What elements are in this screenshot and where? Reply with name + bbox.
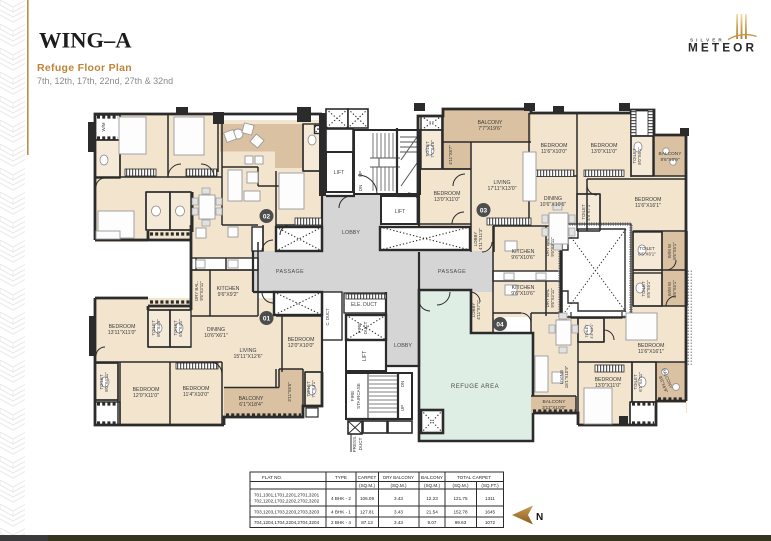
svg-text:12'0"X10'0": 12'0"X10'0" [288,343,315,349]
svg-text:METEOR: METEOR [688,41,757,55]
svg-text:LIFT: LIFT [334,170,345,176]
svg-text:LIFT: LIFT [395,209,406,215]
svg-text:6'1"X4'11": 6'1"X4'11" [638,372,643,392]
svg-text:UP: UP [400,405,405,411]
svg-text:703,1203,1703,2203,2703,3203: 703,1203,1703,2203,2703,3203 [254,510,320,515]
svg-text:3.43: 3.43 [394,520,403,525]
svg-text:11'6"X16'1": 11'6"X16'1" [635,203,661,209]
svg-text:DN: DN [358,185,363,191]
svg-text:8'6"X5'1": 8'6"X5'1" [672,242,677,260]
svg-text:4'3"X3'1": 4'3"X3'1" [590,323,594,339]
svg-text:8'0"X6'1": 8'0"X6'1" [637,147,642,165]
svg-text:7'7"X19'6": 7'7"X19'6" [478,126,502,132]
svg-text:10'6"X10'6": 10'6"X10'6" [540,202,567,208]
svg-text:8'6"X5'1": 8'6"X5'1" [672,280,677,298]
svg-text:9'6"X10'6": 9'6"X10'6" [511,255,535,261]
svg-text:TOILET: TOILET [585,324,589,338]
svg-text:DRY BALCONY: DRY BALCONY [383,475,414,480]
svg-text:TYPE: TYPE [335,475,347,480]
svg-text:3'11"X10'0": 3'11"X10'0" [542,405,566,411]
svg-text:01: 01 [263,316,271,323]
svg-text:6'3"X4'1": 6'3"X4'1" [178,319,183,337]
svg-text:WING–A: WING–A [39,28,132,53]
svg-text:9'6"X9'2": 9'6"X9'2" [218,292,239,298]
svg-text:4 BHK - 2: 4 BHK - 2 [331,496,351,501]
svg-text:9.07: 9.07 [428,520,437,525]
svg-text:PASSAGE: PASSAGE [276,269,304,275]
svg-text:(SQ.M.): (SQ.M.) [424,483,441,488]
svg-text:7'7"X4'5": 7'7"X4'5" [430,140,435,158]
svg-text:STAIRCASE: STAIRCASE [356,383,361,409]
svg-text:9'6"X3'11": 9'6"X3'11" [550,237,555,257]
svg-text:DUCT: DUCT [358,437,363,450]
svg-text:FIRE: FIRE [350,391,355,401]
svg-text:04: 04 [496,322,504,329]
svg-text:9'6"X3'11": 9'6"X3'11" [550,288,555,308]
svg-text:13'0"X11'0": 13'0"X11'0" [591,149,617,155]
svg-text:13'0"X11'0": 13'0"X11'0" [595,383,621,389]
svg-text:4'11"X7'1": 4'11"X7'1" [476,300,481,320]
svg-text:DN: DN [400,381,405,387]
svg-text:03: 03 [480,208,488,215]
svg-text:7'7"X4'1": 7'7"X4'1" [311,380,316,398]
svg-text:13'11"X11'0": 13'11"X11'0" [108,330,137,336]
svg-text:8'0"X4'11": 8'0"X4'11" [104,372,109,392]
svg-text:10'6"X6'1": 10'6"X6'1" [204,333,228,339]
svg-text:DUCT: DUCT [363,321,368,334]
svg-text:8'0"X4'9": 8'0"X4'9" [156,319,161,337]
svg-text:121.75: 121.75 [453,496,467,501]
svg-text:1072: 1072 [485,520,496,525]
svg-text:11'6"X10'0": 11'6"X10'0" [541,149,567,155]
svg-text:9'6"X3'11": 9'6"X3'11" [199,281,204,301]
svg-text:(SQ.M.): (SQ.M.) [390,483,407,488]
svg-text:18'1"X10'9": 18'1"X10'9" [564,365,569,388]
svg-text:4'11"X11'3": 4'11"X11'3" [478,228,483,250]
svg-text:W/M: W/M [101,122,106,131]
svg-text:4'11"X8'7": 4'11"X8'7" [448,145,453,165]
svg-text:N: N [536,512,543,523]
svg-text:12'0"X11'0": 12'0"X11'0" [133,393,159,399]
svg-text:LOBBY: LOBBY [394,343,412,349]
svg-text:99.63: 99.63 [455,520,467,525]
svg-text:702,1202,1702,2202,2702,3202: 702,1202,1702,2202,2702,3202 [254,499,320,504]
svg-text:127.81: 127.81 [360,510,374,515]
svg-text:TOTAL CARPET: TOTAL CARPET [457,475,491,480]
svg-text:11'4"X10'0": 11'4"X10'0" [183,392,209,398]
svg-text:FLAT NO.: FLAT NO. [262,475,282,480]
svg-text:TOILET: TOILET [639,246,655,251]
svg-text:704,1204,1704,2204,2704,3204: 704,1204,1704,2204,2704,3204 [254,520,320,525]
svg-text:4 BHK - 1: 4 BHK - 1 [331,510,351,515]
svg-text:LIFT: LIFT [362,351,368,361]
svg-text:(SQ.M.): (SQ.M.) [359,483,376,488]
svg-text:9'6"X10'6": 9'6"X10'6" [511,291,535,297]
svg-text:(SQ.M.): (SQ.M.) [452,483,469,488]
svg-text:LOBBY: LOBBY [342,230,360,236]
svg-text:13'0"X11'0": 13'0"X11'0" [434,197,460,203]
svg-text:C. DUCT: C. DUCT [325,308,330,325]
svg-text:87.13: 87.13 [361,520,373,525]
svg-text:3.43: 3.43 [394,510,403,515]
svg-text:2 BHK - 4: 2 BHK - 4 [331,520,351,525]
svg-text:17'11"X13'0": 17'11"X13'0" [488,186,517,192]
svg-text:BALCONY: BALCONY [659,151,683,157]
svg-text:3'11"X5'5": 3'11"X5'5" [287,382,292,402]
svg-text:(SQ.FT.): (SQ.FT.) [481,483,499,488]
svg-text:REFUGE AREA: REFUGE AREA [451,384,499,390]
svg-text:ELE. DUCT: ELE. DUCT [351,302,377,308]
svg-text:1311: 1311 [485,496,495,501]
svg-text:12.23: 12.23 [426,496,438,501]
svg-text:11'6"X16'1": 11'6"X16'1" [638,349,664,355]
svg-text:15'11"X12'6": 15'11"X12'6" [234,354,263,360]
svg-text:BALCONY: BALCONY [421,475,443,480]
svg-text:6'1"X18'4": 6'1"X18'4" [239,402,263,408]
svg-text:02: 02 [263,214,271,221]
svg-text:Refuge Floor Plan: Refuge Floor Plan [37,62,132,74]
svg-text:7th, 12th, 17th, 22nd, 27th &: 7th, 12th, 17th, 22nd, 27th & 32nd [37,76,173,86]
svg-text:PASSAGE: PASSAGE [438,269,466,275]
svg-text:152.78: 152.78 [453,510,467,515]
svg-text:701,1301,1701,2201,2701,3201: 701,1301,1701,2201,2701,3201 [254,493,320,498]
svg-text:1645: 1645 [485,510,496,515]
svg-text:3.43: 3.43 [394,496,403,501]
svg-text:106.09: 106.09 [360,496,374,501]
svg-text:8'6"X5'1": 8'6"X5'1" [646,280,651,298]
svg-text:4'9"X7'1": 4'9"X7'1" [586,203,591,221]
svg-text:PRESS.: PRESS. [352,436,357,453]
svg-text:21.54: 21.54 [426,510,438,515]
svg-text:UP: UP [358,171,363,177]
svg-text:8'6"X6'9": 8'6"X6'9" [660,157,679,163]
svg-text:BALCONY: BALCONY [543,399,567,405]
svg-text:FIRE: FIRE [357,323,362,333]
svg-text:CARPET: CARPET [358,475,377,480]
svg-text:8'6"X6'1": 8'6"X6'1" [638,252,656,257]
